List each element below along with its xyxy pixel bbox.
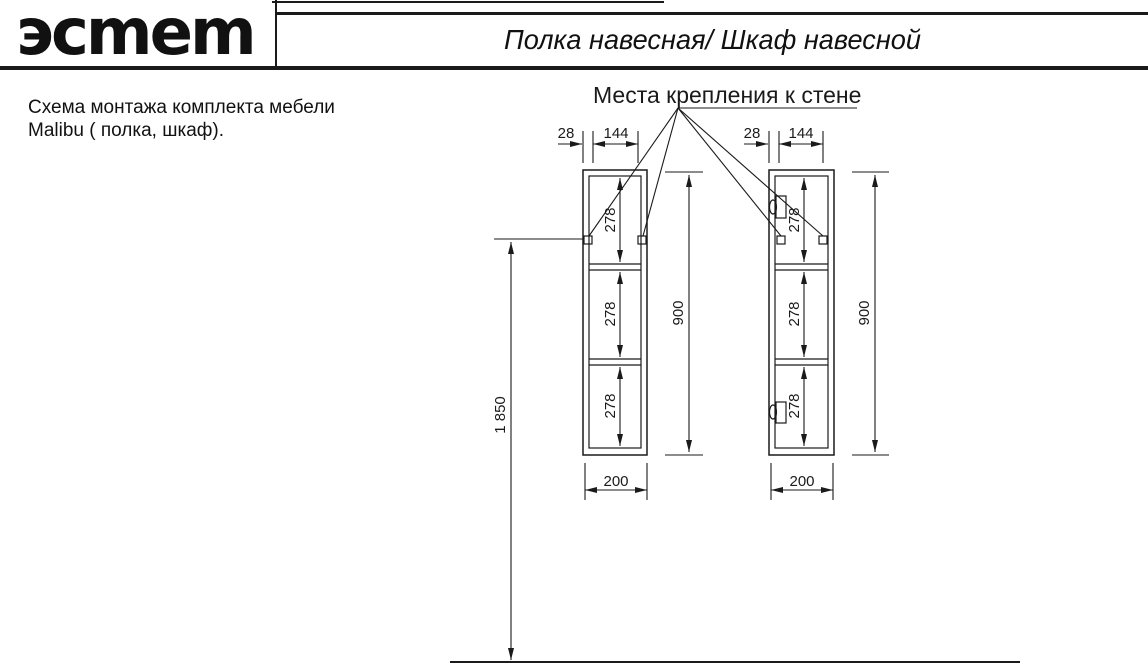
mount-height-dimension: 1 850 bbox=[492, 239, 584, 660]
mounting-square bbox=[638, 236, 646, 244]
dim-section: 278 bbox=[786, 207, 803, 232]
titleblock-divider bbox=[275, 0, 277, 68]
dim-edge-offset: 28 bbox=[558, 125, 575, 142]
dim-edge-offset: 28 bbox=[744, 125, 761, 142]
dim-section: 278 bbox=[602, 393, 619, 418]
callout-title: Места крепления к стене bbox=[593, 82, 861, 108]
mounting-square bbox=[777, 236, 785, 244]
left-unit-dimensions: 28 144 278 278 278 900 200 bbox=[558, 125, 703, 500]
wall-mount-callout: Места крепления к стене bbox=[589, 82, 861, 236]
document-title: Полка навесная/ Шкаф навесной bbox=[290, 13, 1135, 66]
dim-mount-height: 1 850 bbox=[492, 396, 509, 434]
mounting-square bbox=[584, 236, 592, 244]
right-unit-dimensions: 28 144 278 278 278 900 200 bbox=[744, 125, 889, 500]
hinge-icon bbox=[770, 196, 787, 218]
dim-height: 900 bbox=[856, 300, 873, 325]
dim-section: 278 bbox=[786, 393, 803, 418]
brand-logo: эсmem bbox=[16, 0, 254, 68]
dim-width: 200 bbox=[789, 473, 814, 490]
dim-hole-spacing: 144 bbox=[603, 125, 628, 142]
hinge-icon bbox=[770, 402, 787, 423]
dim-height: 900 bbox=[670, 300, 687, 325]
dim-hole-spacing: 144 bbox=[788, 125, 813, 142]
mounting-diagram: Места крепления к стене bbox=[0, 68, 1148, 670]
dim-section: 278 bbox=[786, 301, 803, 326]
dim-width: 200 bbox=[603, 473, 628, 490]
dim-section: 278 bbox=[602, 301, 619, 326]
mounting-square bbox=[819, 236, 827, 244]
sheet-top-border bbox=[272, 1, 664, 3]
dim-section: 278 bbox=[602, 207, 619, 232]
drawing-sheet: эсmem Полка навесная/ Шкаф навесной Схем… bbox=[0, 0, 1148, 670]
